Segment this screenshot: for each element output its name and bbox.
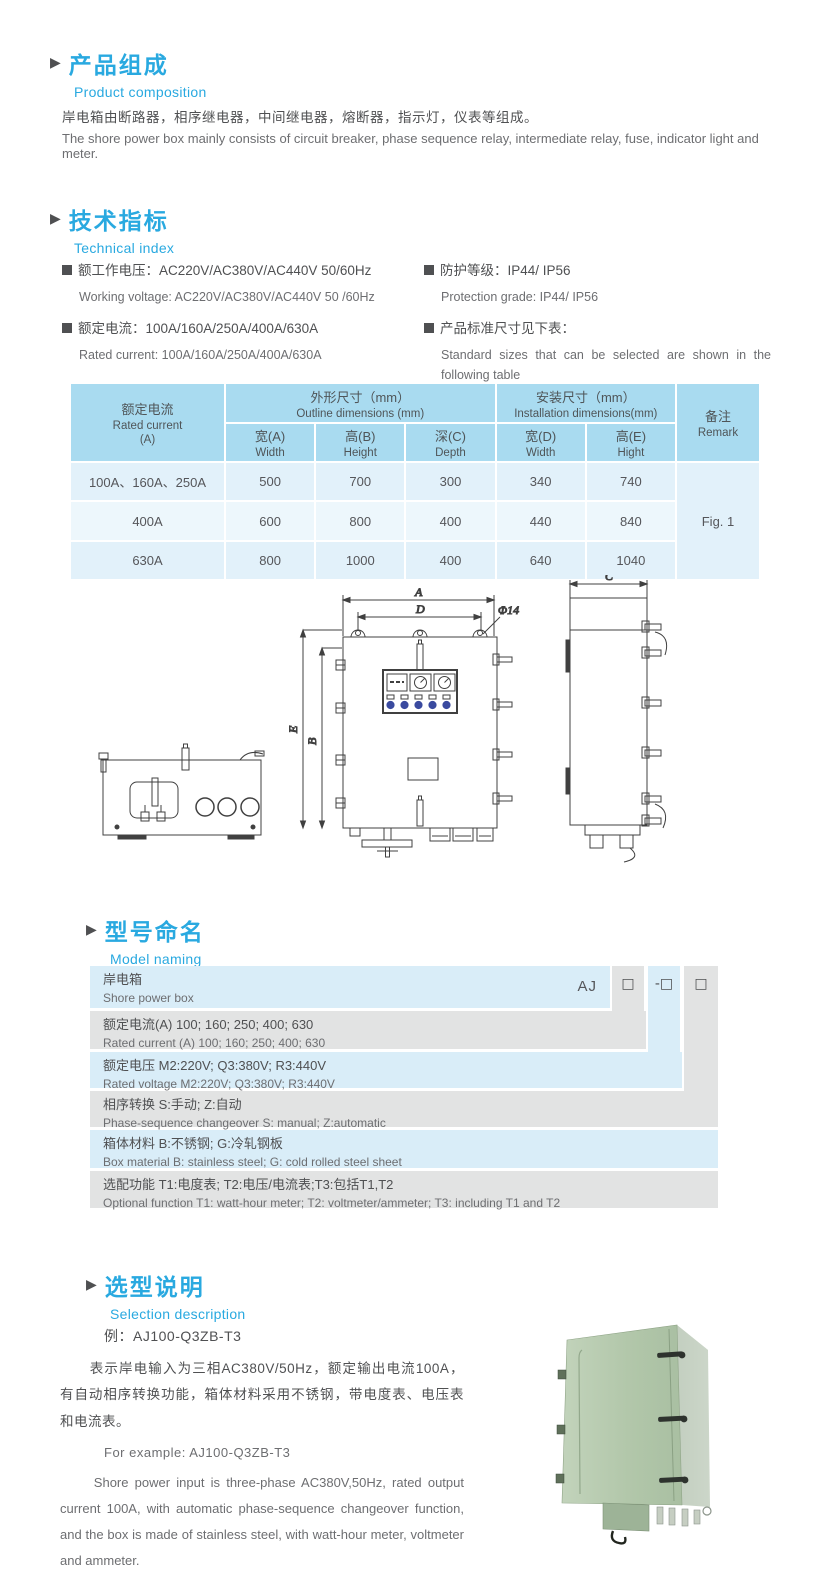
cell-inst-width: 340 (497, 463, 585, 500)
cell-height: 1000 (316, 542, 404, 579)
cell-inst-height: 840 (587, 502, 675, 540)
section-title-en: Model naming (110, 951, 205, 967)
section-title-en: Product composition (74, 84, 207, 100)
triangle-bullet-icon: ▶ (86, 921, 97, 937)
table-row: 100A、160A、250A 500 700 300 340 740 Fig. … (71, 463, 759, 500)
spec-rated-current-en: Rated current: 100A/160A/250A/400A/630A (79, 346, 412, 365)
cell-depth: 400 (406, 502, 494, 540)
cell-inst-height: 1040 (587, 542, 675, 579)
dim-label-b: B (305, 737, 319, 745)
triangle-bullet-icon: ▶ (50, 210, 61, 226)
product-photo (545, 1298, 805, 1558)
cell-current: 630A (71, 542, 224, 579)
spec-protection-grade-zh: 防护等级：IP44/ IP56 (424, 259, 784, 279)
col-header-outline-dimensions: 外形尺寸（mm） Outline dimensions (mm) (226, 384, 495, 422)
side-bottom-bracket (585, 825, 640, 862)
selection-text-block: 例：AJ100-Q3ZB-T3 表示岸电输入为三相AC380V/50Hz，额定输… (60, 1326, 464, 1574)
name-plate-drawing (408, 758, 438, 780)
spec-standard-size-zh: 产品标准尺寸见下表： (424, 317, 784, 337)
selection-example-en: For example: AJ100-Q3ZB-T3 (60, 1445, 464, 1460)
cell-inst-width: 640 (497, 542, 585, 579)
square-bullet-icon (62, 323, 72, 333)
table-row: 400A 600 800 400 440 840 (71, 502, 759, 540)
section-technical-index-heading: ▶技术指标 Technical index (50, 202, 174, 256)
cell-width: 600 (226, 502, 314, 540)
cell-depth: 300 (406, 463, 494, 500)
square-bullet-icon (424, 323, 434, 333)
square-bullet-icon (62, 265, 72, 275)
cell-width: 800 (226, 542, 314, 579)
cell-height: 800 (316, 502, 404, 540)
model-row-phase-sequence: 相序转换 S:手动; Z:自动 Phase-sequence changeove… (90, 1091, 718, 1127)
dim-label-c: C (605, 575, 614, 583)
section-title-zh: 产品组成 (69, 52, 169, 78)
catalog-page: { "colors":{"accent":"#29a9e0","text":"#… (0, 0, 830, 1568)
col-header-installation-dimensions: 安装尺寸（mm） Installation dimensions(mm) (497, 384, 675, 422)
model-row-box-material: 箱体材料 B:不锈钢; G:冷轧钢板 Box material B: stain… (90, 1130, 718, 1168)
spec-protection-grade-en: Protection grade: IP44/ IP56 (441, 288, 784, 307)
front-view-drawing: A D Φ14 E B (286, 585, 519, 857)
code-box: □ (684, 976, 718, 992)
section-title-zh: 型号命名 (105, 919, 205, 945)
col-header-remark: 备注 Remark (677, 384, 759, 461)
front-bottom-hardware (350, 796, 493, 857)
table-row: 630A 800 1000 400 640 1040 (71, 542, 759, 579)
hinge-marks (336, 660, 345, 808)
triangle-bullet-icon: ▶ (86, 1276, 97, 1292)
spec-column-right: 防护等级：IP44/ IP56 Protection grade: IP44/ … (424, 259, 784, 395)
outline-drawing: A D Φ14 E B (0, 575, 830, 895)
section-model-naming-heading: ▶型号命名 Model naming (86, 913, 205, 967)
code-box: □ (612, 976, 644, 992)
section-title-zh: 选型说明 (105, 1274, 205, 1300)
cell-depth: 400 (406, 542, 494, 579)
square-bullet-icon (424, 265, 434, 275)
bottom-view-drawing (99, 744, 264, 839)
section-selection-description-heading: ▶选型说明 Selection description (86, 1268, 246, 1322)
col-header-rated-current: 额定电流 Rated current (A) (71, 384, 224, 461)
triangle-bullet-icon: ▶ (50, 54, 61, 70)
composition-text-zh: 岸电箱由断路器，相序继电器，中间继电器，熔断器，指示灯，仪表等组成。 (62, 106, 782, 126)
selection-example-zh: 例：AJ100-Q3ZB-T3 (60, 1326, 464, 1346)
col-header-height-b: 高(B)Height (316, 424, 404, 461)
latch-marks (493, 654, 512, 804)
spec-column-left: 额工作电压：AC220V/AC380V/AC440V 50/60Hz Worki… (62, 259, 412, 376)
model-row-rated-current: 额定电流(A) 100; 160; 250; 400; 630 Rated cu… (90, 1011, 646, 1049)
model-prefix: AJ (577, 978, 597, 995)
cell-remark: Fig. 1 (677, 463, 759, 579)
cell-current: 100A、160A、250A (71, 463, 224, 500)
dim-label-hole: Φ14 (498, 603, 519, 617)
model-row-shore-power-box: 岸电箱 Shore power box AJ (90, 966, 610, 1008)
side-latches (642, 621, 667, 828)
cell-height: 700 (316, 463, 404, 500)
section-title-en: Selection description (110, 1306, 246, 1322)
dim-label-e: E (286, 725, 300, 734)
col-header-height-e: 高(E)Hight (587, 424, 675, 461)
meter-panel-drawing (383, 670, 457, 713)
model-row-optional-function: 选配功能 T1:电度表; T2:电压/电流表;T3:包括T1,T2 Option… (90, 1171, 718, 1208)
model-naming-diagram: □ -□ □ 岸电箱 Shore power box AJ 额定电流(A) 10… (90, 966, 718, 1208)
composition-text-en: The shore power box mainly consists of c… (62, 131, 782, 161)
selection-body-zh: 表示岸电输入为三相AC380V/50Hz，额定输出电流100A，有自动相序转换功… (60, 1356, 464, 1435)
spec-working-voltage-zh: 额工作电压：AC220V/AC380V/AC440V 50/60Hz (62, 259, 412, 279)
cabinet-bottom-hardware (603, 1503, 711, 1543)
section-product-composition-heading: ▶产品组成 Product composition (50, 46, 207, 100)
cell-inst-width: 440 (497, 502, 585, 540)
spec-rated-current-zh: 额定电流：100A/160A/250A/400A/630A (62, 317, 412, 337)
selection-body-en: Shore power input is three-phase AC380V,… (60, 1470, 464, 1574)
col-header-width-d: 宽(D)Width (497, 424, 585, 461)
spec-working-voltage-en: Working voltage: AC220V/AC380V/AC440V 50… (79, 288, 412, 307)
cell-inst-height: 740 (587, 463, 675, 500)
cell-width: 500 (226, 463, 314, 500)
model-row-rated-voltage: 额定电压 M2:220V; Q3:380V; R3:440V Rated vol… (90, 1052, 682, 1088)
side-view-drawing: C (566, 575, 667, 862)
cell-current: 400A (71, 502, 224, 540)
col-header-width-a: 宽(A)Width (226, 424, 314, 461)
dim-label-a: A (414, 585, 423, 599)
spec-standard-size-en: Standard sizes that can be selected are … (441, 346, 771, 385)
section-title-zh: 技术指标 (69, 208, 169, 234)
dim-label-d: D (415, 602, 425, 616)
section-title-en: Technical index (74, 240, 174, 256)
code-box: -□ (648, 976, 680, 992)
size-table: 额定电流 Rated current (A) 外形尺寸（mm） Outline … (69, 382, 761, 581)
col-header-depth-c: 深(C)Depth (406, 424, 494, 461)
